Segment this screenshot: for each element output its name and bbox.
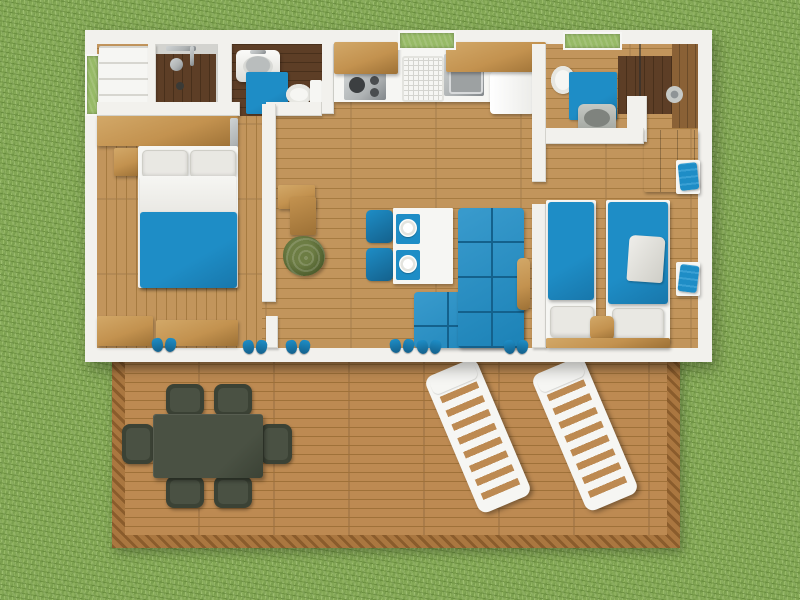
bathroom-window	[563, 32, 622, 50]
corner-sofa-back	[458, 208, 524, 348]
shower-drain	[176, 82, 184, 90]
dish-rack	[402, 56, 444, 102]
terrace-deck	[112, 358, 680, 548]
wall	[532, 44, 546, 182]
outdoor-chair	[214, 384, 252, 416]
outdoor-table	[153, 414, 263, 478]
outdoor-chair	[166, 384, 204, 416]
wall	[532, 204, 546, 348]
outdoor-chair	[166, 476, 204, 508]
house	[85, 30, 712, 362]
outdoor-chair	[214, 476, 252, 508]
towel	[678, 162, 700, 191]
wall	[218, 44, 232, 110]
storage-bench	[546, 338, 670, 348]
shelving-closet	[99, 46, 149, 110]
wall	[148, 44, 156, 108]
kitchen-window	[398, 31, 456, 50]
gas-hob	[344, 72, 386, 100]
wall	[262, 104, 276, 302]
nightstand	[114, 148, 140, 176]
folded-clothes	[626, 235, 665, 283]
towel	[677, 264, 699, 293]
pillow	[550, 306, 594, 338]
slippers	[417, 340, 443, 354]
pillow	[190, 150, 236, 178]
dining-chair	[366, 248, 393, 281]
single-bed-left-blanket	[548, 202, 594, 300]
upper-cabinet	[334, 42, 398, 74]
storage-bench	[97, 316, 153, 346]
wall	[97, 102, 240, 116]
outdoor-chair	[122, 424, 154, 464]
shower-head	[170, 58, 183, 71]
nightstand	[590, 316, 614, 340]
floor-plan-scene	[0, 0, 800, 600]
shower2-drain	[666, 86, 683, 103]
sofa-side-table	[517, 258, 530, 310]
headboard-shelf	[97, 116, 238, 146]
shower-riser	[190, 46, 194, 66]
pillow	[612, 308, 664, 340]
slippers	[286, 340, 312, 354]
bed-blanket	[140, 212, 237, 288]
bed-sheet	[140, 176, 236, 214]
side-cabinet-lower	[290, 197, 316, 235]
slippers	[504, 340, 530, 354]
wall	[322, 44, 334, 114]
slippers	[243, 340, 269, 354]
dining-table	[393, 208, 453, 284]
outdoor-chair	[260, 424, 292, 464]
dining-chair	[366, 210, 393, 243]
slippers	[390, 339, 416, 353]
wall	[546, 128, 644, 144]
upper-cabinet	[446, 42, 546, 72]
pillow	[142, 150, 188, 178]
slippers	[152, 338, 178, 352]
potted-plant	[283, 236, 325, 276]
